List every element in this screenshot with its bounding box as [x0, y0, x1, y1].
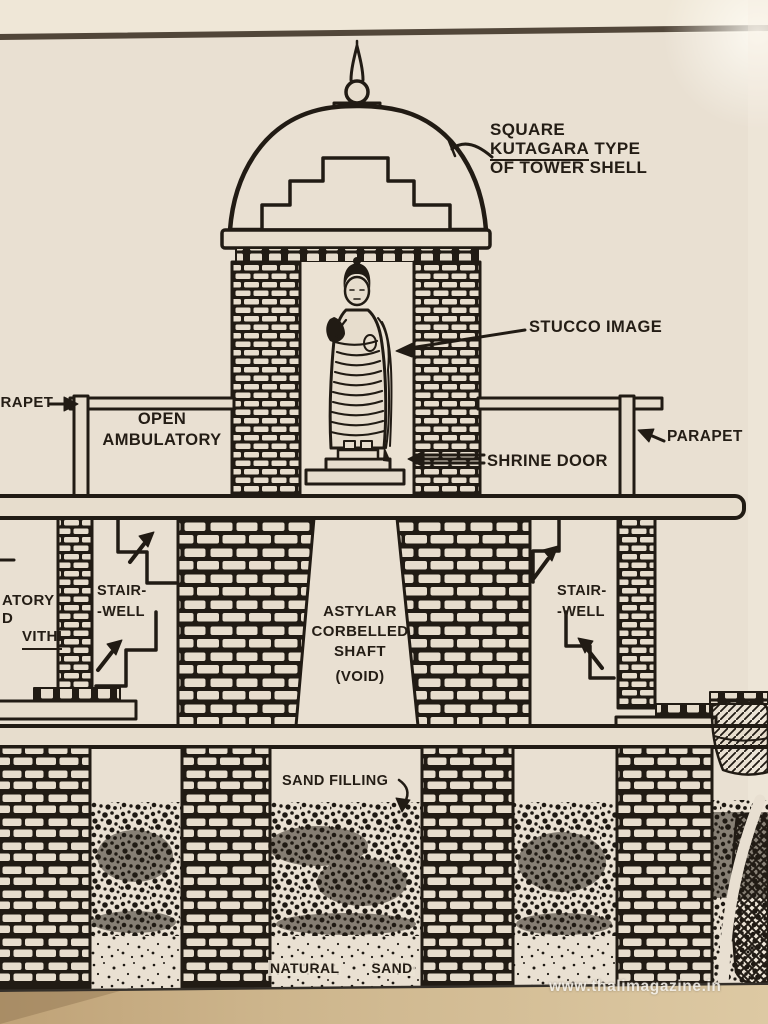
shrine-chamber — [232, 257, 480, 496]
label-edge-fragment-d: D — [2, 609, 13, 629]
outer-wall-left — [58, 518, 92, 690]
temple-cross-section-drawing — [0, 0, 768, 1024]
label-stairwell-left: STAIR- -WELL — [97, 581, 147, 623]
outer-wall-right — [618, 518, 655, 708]
label-sand-filling: SAND FILLING — [282, 771, 388, 791]
label-tower-line3: OF TOWER SHELL — [490, 158, 647, 177]
label-edge-fragment-ambulatory: ATORY — [2, 591, 55, 611]
tower-cornice-slab — [222, 230, 490, 248]
label-open-ambulatory: OPEN AMBULATORY — [92, 409, 232, 451]
label-natural-sand: NATURALSAND — [268, 958, 415, 978]
parapet-post-left — [74, 396, 88, 496]
parapet-rail-left — [70, 398, 234, 409]
label-stucco-image: STUCCO IMAGE — [529, 317, 662, 337]
lower-floor-slab — [0, 726, 768, 747]
core-mass-left — [178, 518, 314, 726]
finial-ball — [346, 81, 368, 103]
label-parapet-right: PARAPET — [667, 427, 743, 447]
parapet-post-right — [620, 396, 634, 496]
label-astylar-shaft: ASTYLAR CORBELLED SHAFT (VOID) — [298, 602, 422, 687]
scanned-diagram-page: SQUARE KUTAGARA TYPE OF TOWER SHELL STUC… — [0, 0, 768, 1024]
label-stairwell-right: STAIR- -WELL — [557, 581, 607, 623]
label-tower-shell: SQUARE KUTAGARA TYPE OF TOWER SHELL — [490, 120, 647, 177]
label-tower-line1: SQUARE — [490, 120, 647, 139]
term-vithi: VITHI — [22, 627, 62, 650]
label-parapet-left: PARAPET — [0, 393, 53, 413]
watermark-text: www.thalimagazine.in — [549, 977, 721, 997]
label-shrine-door: SHRINE DOOR — [487, 451, 608, 471]
chamber-pillar-left — [232, 262, 300, 496]
upper-floor-slab — [0, 496, 744, 518]
